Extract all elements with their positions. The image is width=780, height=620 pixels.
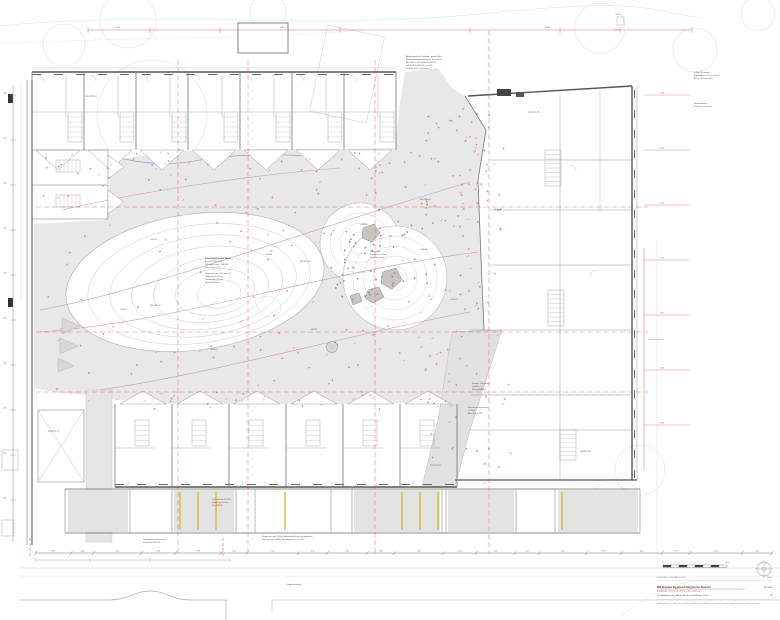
- spot-mark: [507, 384, 509, 386]
- scale-bar-segment: [663, 565, 671, 567]
- note-line: Entwässerungsrinne: [468, 406, 489, 409]
- drainage-marker: [373, 334, 375, 336]
- spot-mark: [77, 173, 79, 175]
- dim-value: 3.45: [458, 551, 462, 553]
- planting-dot: [350, 239, 352, 241]
- door-swing: [246, 75, 252, 81]
- planting-dot: [355, 242, 357, 244]
- spot-mark: [486, 190, 488, 192]
- planting-dot: [343, 280, 345, 282]
- spot-elevation-value: +584.08: [310, 329, 318, 331]
- dim-value: 5.10: [3, 363, 7, 365]
- note-top-right: Zufahrt Feuerwehr Aufstellfläche 3.50 x …: [694, 71, 720, 108]
- door-swing: [237, 481, 243, 487]
- spot-mark: [485, 396, 486, 397]
- spot-mark: [484, 483, 486, 484]
- spot-mark: [488, 448, 490, 450]
- planting-dot: [392, 282, 394, 284]
- spot-mark: [504, 399, 505, 400]
- planting-dot: [370, 270, 372, 272]
- note-line: Rasenhügel große Wiese: [205, 258, 232, 260]
- planting-dot: [376, 293, 378, 295]
- planting-dot: [353, 234, 355, 236]
- dim-value: 2.36: [660, 148, 665, 150]
- dim-value: 3.75: [660, 258, 665, 260]
- dim-value: 3.64: [157, 551, 161, 553]
- haus-e-label: HAUS E: [580, 449, 591, 453]
- storage-room: [68, 490, 128, 532]
- door-swing: [350, 75, 356, 81]
- title-footer: Maßangaben in m · Höhen in m ü. NN · all…: [657, 602, 759, 605]
- haus-a-label: HAUS A: [86, 94, 97, 98]
- spot-mark: [476, 451, 477, 452]
- haus-d-label: HAUS D: [430, 463, 442, 467]
- dim-value: 4.90: [197, 551, 201, 553]
- scale-bar-segment: [703, 565, 711, 567]
- dim-value: 12.45: [115, 27, 121, 29]
- note-line: Bestandsbaum: [694, 102, 708, 105]
- drainage-marker: [242, 393, 244, 395]
- planting-dot: [352, 267, 354, 269]
- plan-title-main: WB Emmaus Eggebrechtweg Kirche Bestand: [657, 586, 711, 589]
- drainage-marker: [378, 209, 380, 211]
- curb-line: [272, 600, 780, 612]
- scale-bar-segment: [719, 565, 727, 567]
- note-line: V-Profil: [468, 409, 476, 412]
- spot-elevation-value: +584.20: [450, 299, 458, 301]
- planting-dot: [380, 235, 382, 237]
- planting-dot: [394, 272, 396, 274]
- tree-circle: [741, 0, 775, 31]
- spot-mark: [502, 404, 504, 405]
- bench-label: 584.08: [615, 14, 621, 16]
- shaft: [497, 89, 511, 96]
- pond: [327, 342, 338, 353]
- note-line: Rampe Tiefgarage: [472, 382, 491, 385]
- road-edge-line: [0, 6, 700, 26]
- door-swing: [570, 165, 596, 276]
- spot-elevation-value: +585.60: [420, 249, 428, 251]
- dim-value: 3.12: [311, 551, 315, 553]
- planting-dot: [393, 246, 395, 248]
- wall-pier: [8, 298, 13, 307]
- spot-elevation-value: +584.36: [265, 254, 273, 256]
- drainage-marker: [159, 251, 161, 253]
- dim-value: 2.64: [3, 228, 7, 230]
- dim-value: 2.90: [660, 313, 665, 315]
- spot-elevation-value: +584.55: [360, 224, 368, 226]
- spot-mark: [502, 147, 504, 149]
- exterior-wall: [468, 86, 632, 96]
- bench-label2: Bank: [615, 29, 619, 31]
- spot-mark: [90, 168, 92, 170]
- note-bottom: Leitungstrasse Fernwärme Schutzrohr DN 2…: [143, 535, 312, 586]
- note-line: Dränschicht 15 cm: [205, 275, 223, 278]
- dim-value: 5.30: [417, 551, 421, 553]
- note-line: Fahrradraum 28 StPl.: [212, 498, 232, 501]
- dim-value: 2.60: [525, 551, 529, 553]
- planting-dot: [341, 296, 343, 298]
- tree-circle: [575, 3, 625, 53]
- note-line: Stauden u. Gräser: [370, 253, 387, 256]
- scale-bar-label: 10 m: [725, 562, 729, 564]
- dim-value: 4.12: [660, 203, 665, 205]
- spot-mark: [484, 463, 485, 464]
- dim-value: 3.15: [3, 138, 7, 140]
- scale-bar: 012510 m: [663, 562, 730, 567]
- planting-dot: [391, 276, 393, 278]
- drainage-marker: [347, 268, 349, 270]
- storage-room: [354, 490, 440, 532]
- planting-dot: [371, 288, 373, 290]
- spot-mark: [57, 197, 59, 198]
- scale-bar-label: 0: [663, 562, 664, 564]
- drainage-marker: [148, 179, 150, 181]
- drainage-marker: [335, 342, 337, 344]
- note-line: Aufstellfläche 3.50 x 11.00 m: [694, 74, 720, 77]
- note-top-center: Belagswechsel Ortbeton, geschliffen Entw…: [406, 55, 443, 70]
- dim-value: 3.85: [51, 551, 55, 553]
- stair: [306, 420, 320, 446]
- note-line: Leitungstrasse Fernwärme: [143, 538, 168, 541]
- note-line: Schutzrohr DN 200: [143, 541, 161, 544]
- drainage-marker: [318, 193, 320, 195]
- spot-mark: [42, 195, 44, 197]
- spot-mark: [483, 149, 485, 151]
- road-edge-line: [0, 30, 360, 44]
- drainage-marker: [348, 367, 350, 369]
- planstand-text: PLANSTAND · FREIGABE 04.2019: [657, 576, 685, 579]
- spot-mark: [495, 209, 496, 210]
- dim-value: 4.05: [3, 498, 7, 500]
- note-line: Oberboden 20 cm: [205, 278, 223, 281]
- note-line: Belag: Schotterrasen: [694, 77, 713, 80]
- dim-value: 3.35: [3, 408, 7, 410]
- spot-mark: [485, 170, 487, 172]
- spot-mark: [498, 194, 500, 196]
- note-line: Gefälle 2.0 % zur Rinne: [406, 67, 430, 70]
- note-line: Anschluss an Bestand DN 150: [406, 61, 436, 64]
- north-label: N: [766, 563, 768, 565]
- spot-mark: [320, 404, 322, 405]
- planting-dot: [357, 278, 359, 280]
- spot-mark: [488, 126, 490, 128]
- planting-dot: [344, 249, 346, 251]
- planting-dot: [434, 264, 436, 266]
- note-line: Pflanzhügel: [370, 251, 381, 253]
- scale-bar-segment: [679, 565, 687, 567]
- dim-value: 5.12: [116, 551, 120, 553]
- drainage-marker: [136, 364, 138, 366]
- note-line: Böschung ≤ 1:3: [205, 266, 221, 269]
- spot-mark: [487, 301, 489, 303]
- note-line: OK Belag +584.10 = ±0.00: [406, 65, 433, 67]
- dim-value: 3.70: [602, 551, 606, 553]
- dim-value: 24.80: [545, 27, 551, 29]
- scale-bar-segment: [671, 565, 679, 567]
- dim-value: 4.15: [494, 551, 498, 553]
- dim-value: 3.90: [3, 273, 7, 275]
- tree-circle: [673, 28, 717, 72]
- spot-elevation-value: +583.95: [210, 349, 218, 351]
- spot-mark: [67, 195, 69, 197]
- dim-value: 4.40: [640, 551, 644, 553]
- planting-dot: [337, 284, 339, 286]
- dim-value: 2.45: [3, 318, 7, 320]
- curb-line: [20, 591, 226, 620]
- dim-value: 5.60: [714, 551, 718, 553]
- plan-title-line2: OG Neubebauung, Belag, Mauern und Bäume …: [657, 594, 709, 597]
- dim-value: 2.80: [3, 93, 7, 95]
- spot-mark: [379, 408, 381, 410]
- plan-title-sub: Freianlagen Innenhof · Belag u. Ausstatt…: [657, 590, 700, 593]
- drainage-marker: [137, 306, 139, 308]
- note-line: Entwässerungsrinne gem. Detail 4.12: [406, 58, 443, 61]
- spot-mark: [486, 199, 488, 201]
- storage-room: [558, 490, 638, 532]
- spot-mark: [430, 433, 432, 435]
- door-swing: [194, 75, 200, 81]
- dim-value: 4.26: [346, 551, 350, 553]
- spot-mark: [510, 452, 512, 454]
- note-line: Ansaat RSM 7.1.2: [205, 260, 224, 263]
- door-swing: [38, 75, 44, 81]
- dim-value: 4.60: [660, 368, 665, 370]
- planting-dot: [397, 221, 399, 223]
- stair: [135, 420, 149, 446]
- spot-mark: [437, 406, 439, 407]
- planting-dot: [364, 252, 366, 254]
- index-letter: d: [770, 594, 772, 597]
- stair: [249, 420, 263, 446]
- planting-dot: [369, 294, 371, 296]
- stair: [192, 420, 206, 446]
- site-plan-page: RW DN 150RW DN 200SW DN 150 +584.12+584.…: [0, 0, 780, 620]
- storage-room: [448, 490, 514, 532]
- note-line: Baugrenze gem. B-Plan, Abstandsflächen n…: [262, 535, 312, 538]
- spot-elevation-value: +584.72: [120, 309, 128, 311]
- dim-value: 5.48: [660, 93, 665, 95]
- drainage-label: RW DN 200: [300, 261, 312, 263]
- planting-dot: [344, 259, 346, 261]
- planting-dot: [352, 299, 354, 301]
- planting-dot: [353, 246, 355, 248]
- tree-circle: [615, 445, 665, 495]
- note-line: Anschluss RW: [468, 412, 483, 415]
- dim-value: 3.20: [755, 551, 759, 553]
- note-line: OK Hügel max. +585.60: [205, 264, 229, 266]
- note-line: Wände gestrichen: [212, 501, 228, 504]
- dim-value: 5.05: [561, 551, 565, 553]
- door-swing: [298, 75, 304, 81]
- dim-value: 2.40: [80, 551, 84, 553]
- dim-value: 2.75: [232, 551, 236, 553]
- note-line: Belag Asphalt: [472, 388, 486, 391]
- planting-dot: [402, 280, 404, 282]
- planting-dot: [381, 276, 383, 278]
- dim-value: 4.20: [3, 183, 7, 185]
- boundary-label: Grundstücksgrenze: [648, 338, 664, 341]
- wall-pier: [8, 94, 13, 103]
- planting-dot: [372, 244, 374, 246]
- spot-mark: [494, 272, 496, 274]
- planting-dot: [403, 234, 405, 236]
- drainage-marker: [425, 214, 427, 216]
- planting-dot: [426, 282, 428, 284]
- planting-dot: [414, 258, 416, 260]
- stair: [560, 430, 576, 460]
- index-label: INDEX: [767, 577, 773, 579]
- door-swing: [142, 75, 148, 81]
- drainage-marker: [152, 164, 154, 166]
- drainage-marker: [422, 228, 424, 230]
- note-line: Belagswechsel Ortbeton, geschliffen: [406, 55, 442, 58]
- site-plan-drawing: RW DN 150RW DN 200SW DN 150 +584.12+584.…: [0, 0, 780, 620]
- planting-dot: [410, 225, 412, 227]
- haus-c-label: HAUS C: [48, 429, 60, 433]
- tree-circle: [100, 0, 156, 48]
- planting-dot: [425, 274, 427, 276]
- planting-dot: [406, 231, 408, 233]
- dim-value: 2.90: [3, 453, 7, 455]
- stair: [420, 420, 434, 446]
- drainage-label: RW DN 150: [150, 305, 162, 307]
- spot-mark: [98, 174, 100, 175]
- north-arrow-icon: N: [755, 560, 773, 578]
- storage-room: [174, 490, 234, 532]
- drainage-marker: [260, 349, 262, 351]
- spot-mark: [301, 405, 303, 407]
- drainage-marker: [81, 299, 83, 301]
- plan-scale: M 1:100: [764, 587, 773, 589]
- spot-mark: [154, 408, 155, 409]
- spot-elevation-value: +584.12: [150, 239, 158, 241]
- scale-bar-segment: [687, 565, 695, 567]
- scale-bar-label: 2: [679, 562, 680, 564]
- dim-value: 3.25: [660, 423, 665, 425]
- planting-dot: [375, 279, 377, 281]
- drainage-marker: [401, 235, 403, 237]
- planting-dot: [379, 245, 381, 247]
- planting-dot: [344, 262, 346, 264]
- note-line: Tür T30 RS: [212, 505, 223, 507]
- door-swing: [90, 75, 96, 81]
- haus-b-label: HAUS B: [528, 110, 539, 114]
- planting-dot: [349, 241, 351, 243]
- scale-bar-label: 1: [671, 562, 672, 564]
- spot-mark: [486, 164, 488, 166]
- note-line: Unterbau gem. Schnitt C-C: [205, 272, 232, 275]
- drainage-marker: [160, 189, 162, 191]
- street-label: Eggebrechtweg: [287, 583, 301, 586]
- planting-dot: [335, 287, 337, 289]
- spot-mark: [210, 407, 212, 408]
- drainage-marker: [362, 330, 364, 332]
- drainage-marker: [240, 231, 242, 233]
- title-block: 012510 m N PLANSTAND · FREIGABE 04.2019 …: [657, 560, 773, 605]
- spot-mark: [499, 229, 501, 231]
- planting-dot: [330, 267, 332, 269]
- scale-bar-label: 5: [695, 562, 696, 564]
- note-line: Gefälle 6 %: [472, 386, 483, 388]
- spot-mark: [47, 167, 48, 168]
- planting-dot: [368, 292, 370, 294]
- context-structure: [2, 520, 14, 536]
- spot-mark: [498, 466, 499, 467]
- dim-value: 2.88: [379, 551, 383, 553]
- spot-mark: [465, 448, 467, 450]
- tree-circle: [43, 24, 85, 66]
- planting-dot: [364, 295, 366, 297]
- shaft: [516, 92, 524, 97]
- note-line: Rasen ansäen: [205, 282, 220, 284]
- door-swing: [351, 481, 357, 487]
- planting-dot: [340, 282, 342, 284]
- planting-dot: [414, 277, 416, 279]
- note-line: Findlinge Granit: [370, 256, 385, 259]
- note-line: erhalten u. schützen: [694, 105, 712, 108]
- spot-mark: [136, 153, 138, 155]
- dim-value: 5.48: [271, 551, 275, 553]
- note-line: Höhenbezug: DHHN2016, Angaben in m ü. NN: [262, 538, 304, 541]
- scale-bar-segment: [711, 565, 719, 567]
- scale-bar-segment: [695, 565, 703, 567]
- spot-mark: [481, 184, 482, 185]
- spot-mark: [493, 163, 495, 164]
- note-line: Zufahrt Feuerwehr: [694, 71, 711, 74]
- dim-value: 2.95: [674, 551, 678, 553]
